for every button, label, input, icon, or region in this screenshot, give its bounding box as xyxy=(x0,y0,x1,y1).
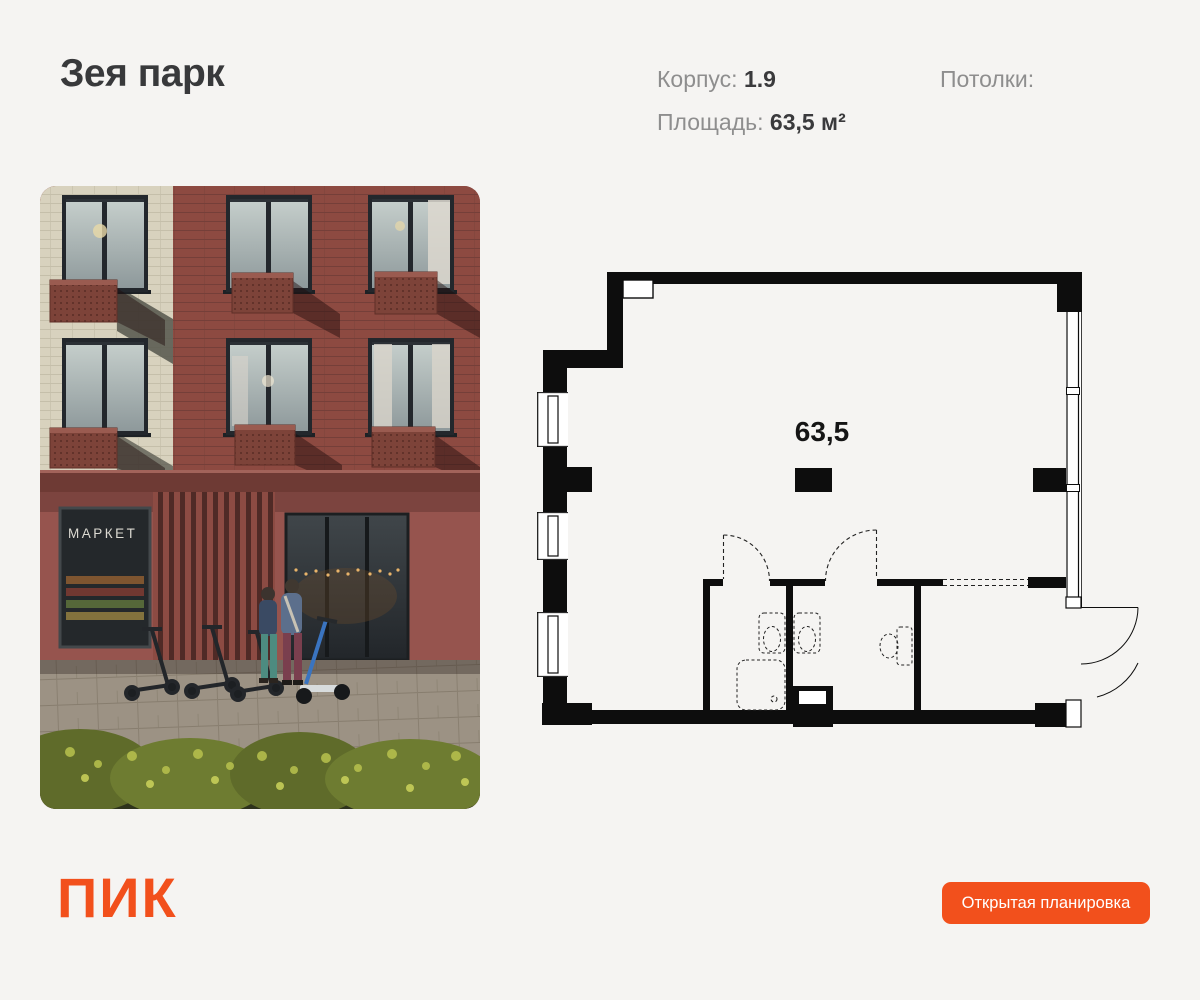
spec-building: Корпус: 1.9 xyxy=(657,66,776,93)
pavement-shadow xyxy=(40,660,480,674)
plan-shaft-opening xyxy=(799,691,826,704)
plan-walls xyxy=(542,272,1082,727)
bushes xyxy=(40,729,480,809)
plan-dashed-elements xyxy=(724,530,1029,586)
floor-plan: 63,5 xyxy=(520,250,1160,750)
pik-logo: ПИК xyxy=(57,868,178,928)
facade-window xyxy=(59,195,151,294)
plan-right-glazing xyxy=(1066,312,1082,727)
spec-area: Площадь: 63,5 м² xyxy=(657,109,846,136)
facade-beam xyxy=(40,470,480,492)
facade-window xyxy=(59,338,151,437)
building-photo-illustration: МАРКЕТ xyxy=(40,186,480,809)
toilet-fixture xyxy=(759,613,785,653)
plan-left-windows xyxy=(537,392,568,677)
shower-fixture xyxy=(737,660,785,710)
spec-area-value: 63,5 м² xyxy=(770,109,846,135)
market-sign: МАРКЕТ xyxy=(68,526,137,541)
plan-entrance-door xyxy=(1081,608,1138,698)
building-photo: МАРКЕТ xyxy=(40,186,480,809)
toilet-fixture xyxy=(897,627,912,665)
facade-beam-highlight xyxy=(40,470,480,473)
plan-door-jamb-top xyxy=(1066,597,1081,608)
project-title: Зея парк xyxy=(60,52,224,96)
plan-wall-notch xyxy=(623,280,653,298)
spec-ceiling-label: Потолки: xyxy=(940,66,1034,92)
plan-door-jamb-bottom xyxy=(1066,700,1081,727)
storefront: МАРКЕТ xyxy=(40,492,480,660)
spec-building-label: Корпус: xyxy=(657,66,738,92)
facade-upper xyxy=(40,186,480,491)
spec-building-value: 1.9 xyxy=(744,66,776,92)
spec-ceiling: Потолки: xyxy=(940,66,1034,93)
spec-area-label: Площадь: xyxy=(657,109,764,135)
toilet-fixture xyxy=(794,613,820,653)
floor-plan-drawing: 63,5 xyxy=(520,250,1160,750)
plan-area-label: 63,5 xyxy=(795,416,850,447)
open-plan-button[interactable]: Открытая планировка xyxy=(942,882,1150,924)
